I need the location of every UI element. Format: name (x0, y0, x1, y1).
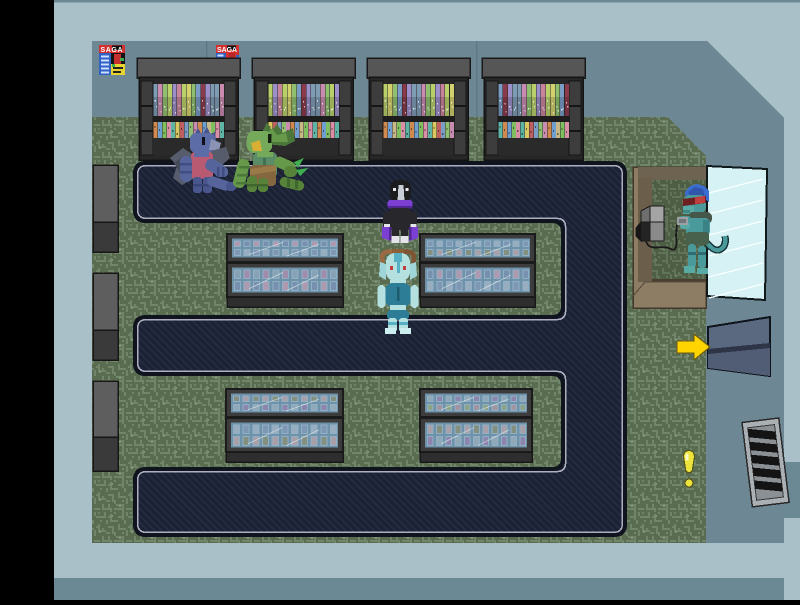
svg-text:SAGA: SAGA (101, 47, 123, 54)
svg-text:SAGA: SAGA (217, 47, 237, 54)
